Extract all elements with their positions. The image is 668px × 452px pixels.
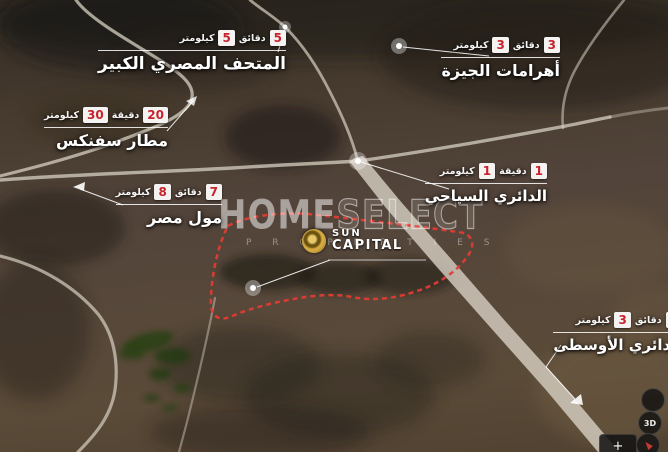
km-badge: 5 <box>218 30 234 46</box>
km-badge: 1 <box>479 163 495 179</box>
leader-sphinx <box>167 100 194 131</box>
distance-row: 7 دقائق 8 كيلومتر <box>116 184 222 205</box>
distance-row: 1 دقيقة 1 كيلومتر <box>425 163 547 184</box>
minutes-badge: 20 <box>143 107 168 123</box>
map-3d-button[interactable]: 3D <box>638 411 662 435</box>
label-tourist-ring-road: 1 دقيقة 1 كيلومتر الدائري السياحي <box>425 163 547 206</box>
km-unit: كيلومتر <box>44 110 79 121</box>
zoom-in-button[interactable]: + <box>599 434 637 452</box>
sun-capital-sun-icon <box>302 229 326 253</box>
km-unit: كيلومتر <box>116 187 151 198</box>
3d-button-label: 3D <box>644 419 656 428</box>
km-unit: كيلومتر <box>180 33 215 44</box>
place-name: مول مصر <box>116 208 222 228</box>
label-giza-pyramids: 3 دقائق 3 كيلومتر أهرامات الجيزة <box>441 37 560 81</box>
place-name: الدائري الأوسطى <box>553 336 668 355</box>
minutes-badge: 1 <box>531 163 547 179</box>
sun-capital-logo: SUN CAPITAL <box>302 228 403 253</box>
minutes-unit: دقائق <box>513 40 540 51</box>
label-middle-ring-road: 3 دقائق 3 كيلومتر الدائري الأوسطى <box>553 312 668 355</box>
place-name: أهرامات الجيزة <box>441 61 560 81</box>
logo-line-capital: CAPITAL <box>332 239 403 253</box>
minutes-unit: دقائق <box>175 187 202 198</box>
place-name: الدائري السياحي <box>425 187 547 206</box>
km-badge: 30 <box>83 107 108 123</box>
sun-capital-wordmark: SUN CAPITAL <box>332 228 403 253</box>
compass-button[interactable] <box>636 433 660 452</box>
km-unit: كيلومتر <box>440 166 475 177</box>
distance-row: 5 دقائق 5 كيلومتر <box>98 30 286 51</box>
satellite-map-canvas: HOMESELECT P R O P E R T I E S SUN CAPIT… <box>0 0 668 452</box>
label-mall-of-egypt: 7 دقائق 8 كيلومتر مول مصر <box>116 184 222 228</box>
distance-row: 20 دقيقة 30 كيلومتر <box>44 107 168 128</box>
minutes-badge: 3 <box>544 37 560 53</box>
plus-icon: + <box>613 440 624 452</box>
place-name: المتحف المصري الكبير <box>98 54 286 75</box>
km-badge: 3 <box>492 37 508 53</box>
road-right-faint <box>610 108 668 117</box>
distance-row: 3 دقائق 3 كيلومتر <box>553 312 668 333</box>
place-name: مطار سفنكس <box>44 131 168 151</box>
km-badge: 3 <box>614 312 630 328</box>
label-grand-egyptian-museum: 5 دقائق 5 كيلومتر المتحف المصري الكبير <box>98 30 286 75</box>
km-unit: كيلومتر <box>454 40 489 51</box>
km-unit: كيلومتر <box>576 315 611 326</box>
minutes-unit: دقائق <box>635 315 662 326</box>
minutes-badge: 7 <box>206 184 222 200</box>
map-control-button[interactable] <box>641 388 665 412</box>
minutes-badge: 5 <box>270 30 286 46</box>
distance-row: 3 دقائق 3 كيلومتر <box>441 37 560 58</box>
minutes-unit: دقيقة <box>112 110 140 121</box>
compass-needle-icon <box>643 440 653 450</box>
arrow-mall <box>73 182 85 191</box>
minutes-unit: دقائق <box>239 33 266 44</box>
label-sphinx-airport: 20 دقيقة 30 كيلومتر مطار سفنكس <box>44 107 168 151</box>
minutes-unit: دقيقة <box>499 166 527 177</box>
km-badge: 8 <box>154 184 170 200</box>
